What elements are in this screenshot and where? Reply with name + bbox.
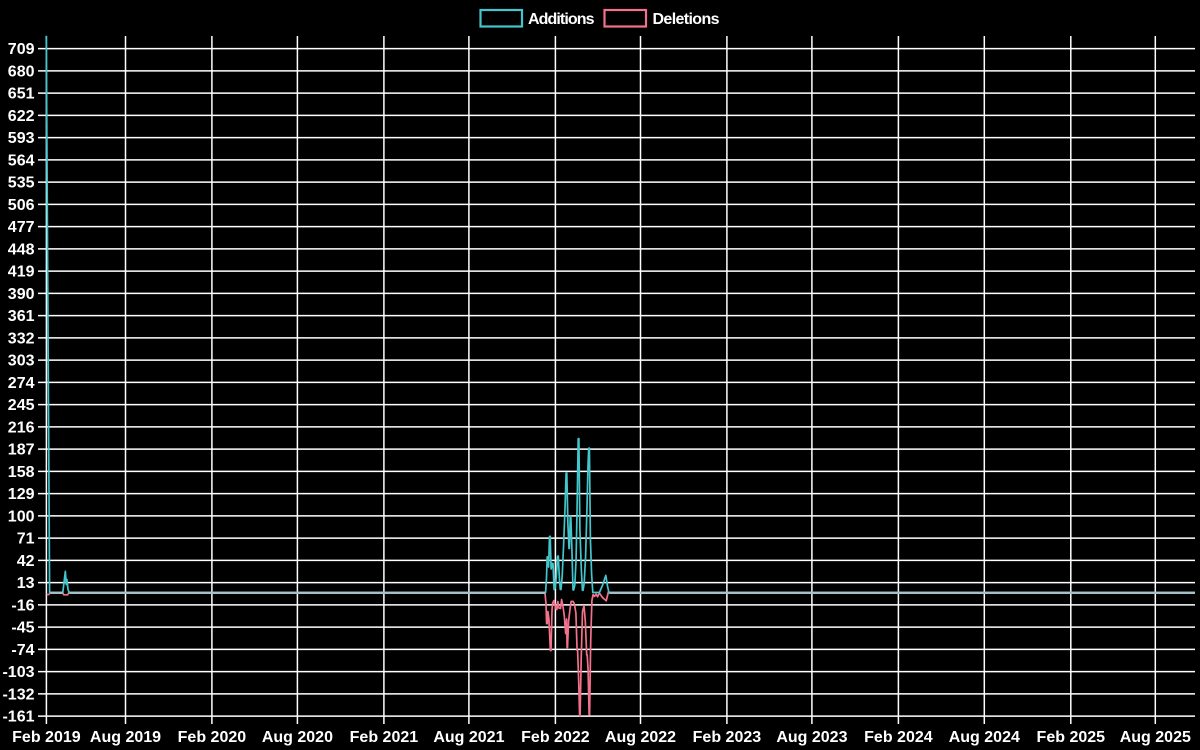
svg-text:Feb 2022: Feb 2022 <box>521 729 590 746</box>
svg-text:13: 13 <box>17 575 35 592</box>
svg-text:680: 680 <box>8 63 35 80</box>
svg-text:535: 535 <box>8 175 35 192</box>
svg-text:158: 158 <box>8 464 35 481</box>
svg-text:Aug 2023: Aug 2023 <box>776 729 847 746</box>
svg-text:Feb 2019: Feb 2019 <box>12 729 81 746</box>
svg-text:-16: -16 <box>11 597 34 614</box>
svg-text:216: 216 <box>8 419 35 436</box>
svg-text:Aug 2019: Aug 2019 <box>90 729 161 746</box>
svg-text:-103: -103 <box>2 664 34 681</box>
svg-text:448: 448 <box>8 241 35 258</box>
svg-text:-74: -74 <box>11 642 34 659</box>
svg-text:303: 303 <box>8 353 35 370</box>
svg-text:187: 187 <box>8 442 35 459</box>
svg-text:651: 651 <box>8 86 35 103</box>
svg-text:129: 129 <box>8 486 35 503</box>
svg-text:Feb 2021: Feb 2021 <box>350 729 419 746</box>
svg-text:361: 361 <box>8 308 35 325</box>
svg-text:Aug 2024: Aug 2024 <box>949 729 1020 746</box>
svg-text:245: 245 <box>8 397 35 414</box>
svg-text:Aug 2021: Aug 2021 <box>433 729 504 746</box>
svg-text:-132: -132 <box>2 686 34 703</box>
svg-text:-161: -161 <box>2 709 34 726</box>
svg-text:593: 593 <box>8 130 35 147</box>
svg-text:390: 390 <box>8 286 35 303</box>
svg-text:622: 622 <box>8 108 35 125</box>
svg-text:Aug 2025: Aug 2025 <box>1120 729 1191 746</box>
svg-text:100: 100 <box>8 508 35 525</box>
svg-text:42: 42 <box>17 553 35 570</box>
svg-text:332: 332 <box>8 330 35 347</box>
svg-text:709: 709 <box>8 41 35 58</box>
svg-text:564: 564 <box>8 152 35 169</box>
svg-text:71: 71 <box>17 531 35 548</box>
svg-text:Feb 2020: Feb 2020 <box>178 729 247 746</box>
svg-text:-45: -45 <box>11 620 34 637</box>
svg-text:Additions: Additions <box>528 11 595 28</box>
svg-text:Feb 2023: Feb 2023 <box>693 729 762 746</box>
svg-text:419: 419 <box>8 264 35 281</box>
svg-text:506: 506 <box>8 197 35 214</box>
svg-text:Aug 2020: Aug 2020 <box>262 729 333 746</box>
svg-text:477: 477 <box>8 219 35 236</box>
svg-text:Deletions: Deletions <box>653 11 720 28</box>
svg-text:Feb 2024: Feb 2024 <box>864 729 933 746</box>
svg-text:Feb 2025: Feb 2025 <box>1037 729 1106 746</box>
svg-text:274: 274 <box>8 375 35 392</box>
svg-text:Aug 2022: Aug 2022 <box>605 729 676 746</box>
